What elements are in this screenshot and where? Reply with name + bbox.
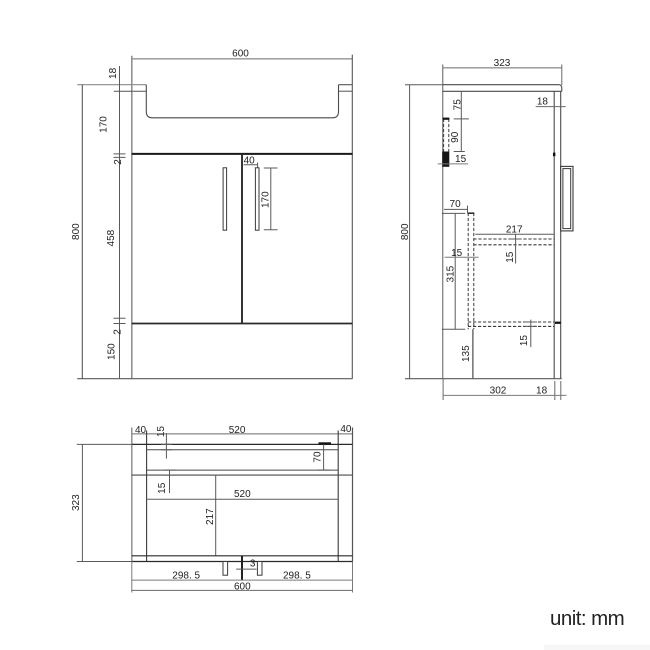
svg-text:150: 150 bbox=[106, 343, 117, 360]
svg-text:15: 15 bbox=[157, 482, 168, 494]
svg-text:458: 458 bbox=[106, 229, 117, 246]
svg-text:18: 18 bbox=[108, 67, 119, 79]
svg-text:2: 2 bbox=[113, 329, 124, 335]
svg-text:18: 18 bbox=[536, 385, 548, 396]
svg-text:70: 70 bbox=[450, 199, 462, 210]
svg-text:135: 135 bbox=[461, 345, 472, 362]
svg-text:40: 40 bbox=[244, 156, 256, 167]
svg-text:600: 600 bbox=[232, 48, 249, 59]
svg-text:520: 520 bbox=[234, 489, 251, 500]
svg-text:800: 800 bbox=[71, 223, 82, 240]
svg-text:217: 217 bbox=[506, 225, 523, 236]
svg-text:298. 5: 298. 5 bbox=[283, 570, 311, 581]
svg-text:800: 800 bbox=[400, 223, 411, 240]
svg-text:unit: mm: unit: mm bbox=[550, 607, 624, 630]
svg-text:90: 90 bbox=[450, 131, 461, 143]
svg-text:170: 170 bbox=[261, 191, 272, 208]
svg-text:15: 15 bbox=[156, 426, 167, 438]
svg-text:600: 600 bbox=[234, 581, 251, 592]
svg-text:217: 217 bbox=[205, 508, 216, 525]
svg-text:323: 323 bbox=[71, 494, 82, 511]
svg-text:70: 70 bbox=[312, 451, 323, 463]
svg-text:15: 15 bbox=[519, 335, 530, 347]
svg-text:40: 40 bbox=[340, 424, 352, 435]
svg-text:298. 5: 298. 5 bbox=[172, 570, 200, 581]
svg-text:323: 323 bbox=[494, 58, 511, 69]
svg-text:3: 3 bbox=[250, 559, 256, 570]
svg-text:40: 40 bbox=[135, 425, 147, 436]
svg-text:75: 75 bbox=[452, 99, 463, 111]
svg-text:315: 315 bbox=[446, 265, 457, 282]
svg-text:170: 170 bbox=[98, 116, 109, 133]
svg-text:15: 15 bbox=[455, 154, 467, 165]
svg-text:15: 15 bbox=[451, 248, 463, 259]
svg-text:18: 18 bbox=[537, 97, 549, 108]
svg-text:2: 2 bbox=[113, 159, 124, 165]
svg-text:15: 15 bbox=[505, 251, 516, 263]
svg-text:520: 520 bbox=[229, 425, 246, 436]
svg-text:302: 302 bbox=[490, 385, 507, 396]
